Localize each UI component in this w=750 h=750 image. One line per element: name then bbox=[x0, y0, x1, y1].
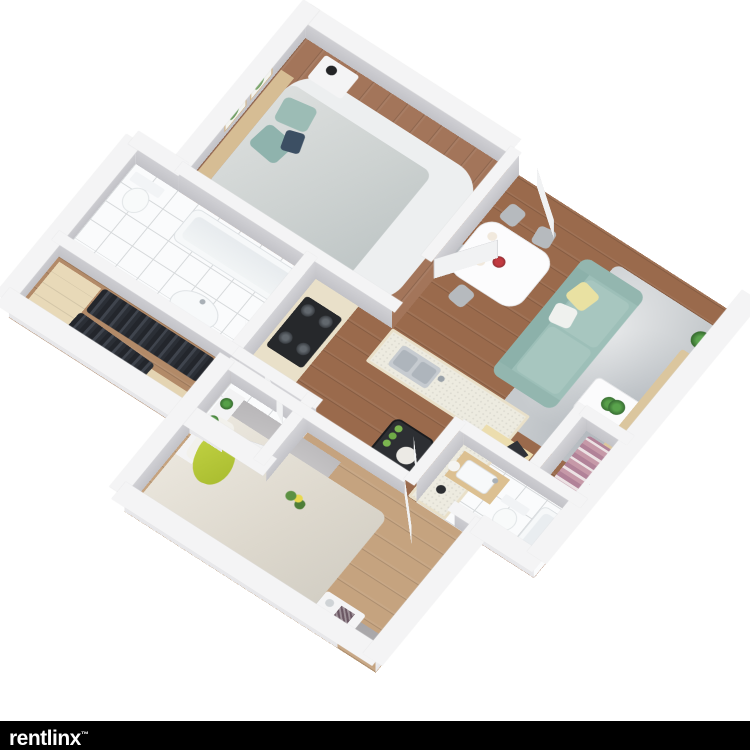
green-bottle-3 bbox=[381, 438, 392, 448]
trademark-symbol: ™ bbox=[81, 730, 89, 739]
floorplan-render: rentlinx™ bbox=[0, 0, 750, 750]
apartment-3d-scene bbox=[0, 4, 746, 706]
rentlinx-logo: rentlinx™ bbox=[9, 721, 88, 750]
brand-bar: rentlinx™ bbox=[0, 721, 750, 750]
burner-1 bbox=[298, 302, 318, 319]
burner-2 bbox=[316, 313, 336, 330]
burner-3 bbox=[276, 329, 296, 346]
rentlinx-logo-text: rentlinx bbox=[9, 727, 81, 750]
burner-4 bbox=[294, 340, 314, 357]
